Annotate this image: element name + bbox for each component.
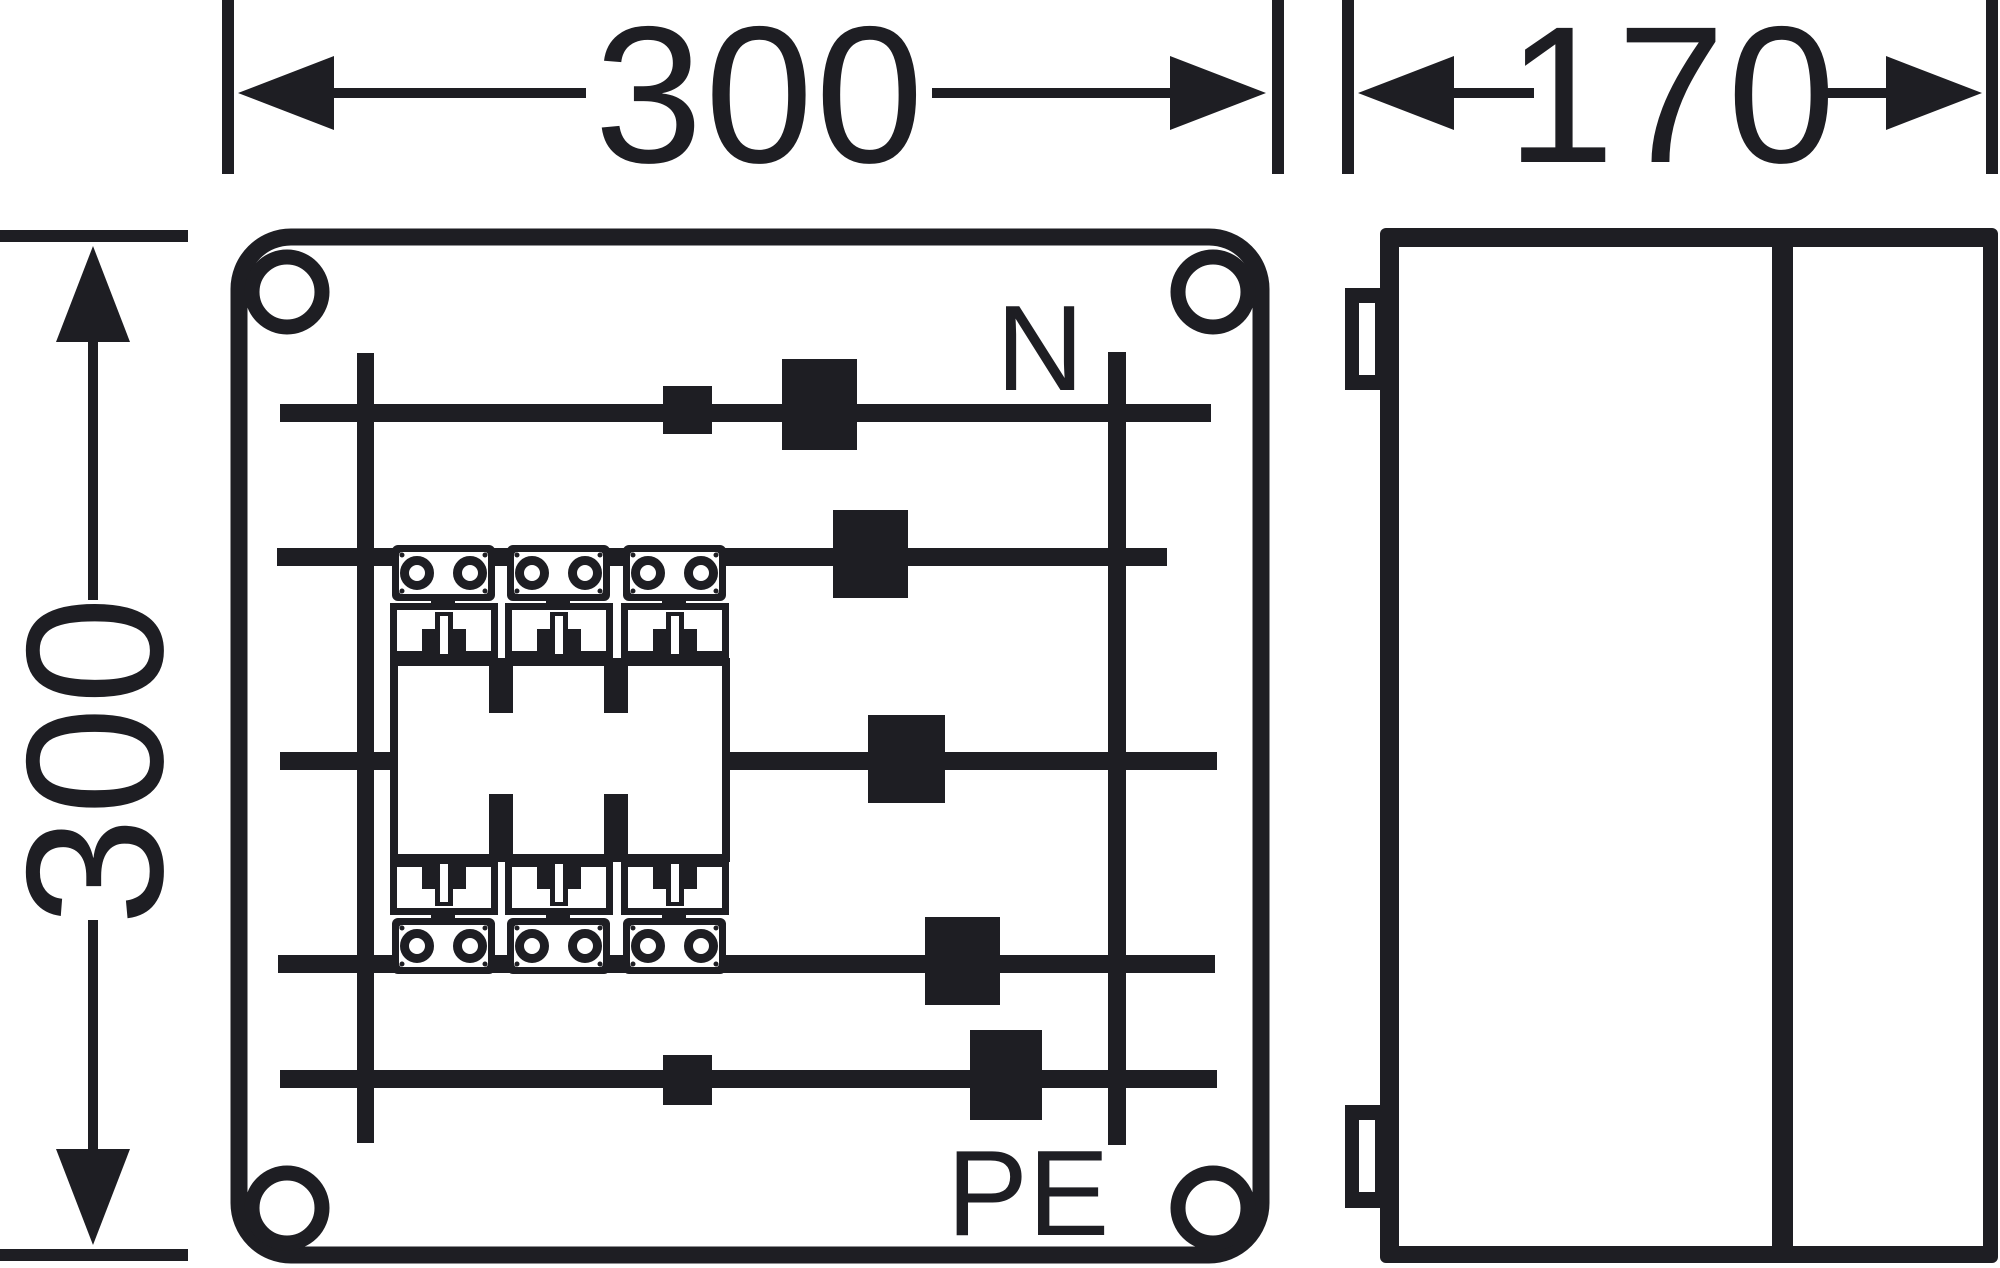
corner-screw	[1178, 257, 1248, 327]
connector-block-large	[782, 359, 857, 450]
corner-screw	[252, 1173, 322, 1243]
terminal-block-assembly	[390, 545, 729, 974]
depth-dimension-label: 170	[1506, 0, 1837, 204]
dimension-line	[932, 88, 1184, 98]
connector-block-large	[833, 510, 908, 598]
front-view: N PE	[239, 237, 1261, 1261]
terminal-plate-bottom	[392, 918, 495, 974]
terminal-plate-top	[392, 545, 495, 601]
arrow-left-icon	[1358, 56, 1454, 130]
wire-clamp-top	[621, 603, 729, 658]
dimension-width: 300	[222, 0, 1284, 204]
extension-line	[1986, 0, 1998, 174]
connector-block-small	[663, 1055, 712, 1105]
arrow-up-icon	[56, 246, 130, 342]
enclosure-drawing: 300 170 300	[0, 0, 2000, 1268]
dimension-line	[88, 332, 98, 600]
extension-line	[0, 1249, 188, 1261]
terminal-plate-top	[507, 545, 610, 601]
module-divider	[604, 794, 628, 862]
busbar-phase-2-left	[280, 752, 392, 770]
busbar-earth	[280, 1070, 1217, 1088]
arrow-down-icon	[56, 1149, 130, 1245]
connector-block-large	[868, 715, 945, 803]
side-panel-cover	[1793, 247, 1983, 1246]
dimension-depth: 170	[1342, 0, 1998, 204]
dimension-line	[320, 88, 586, 98]
height-dimension-label: 300	[0, 594, 204, 925]
technical-drawing-canvas: 300 170 300	[0, 0, 2000, 1268]
terminal-plate-bottom	[623, 918, 726, 974]
riser-bar-right	[1108, 352, 1126, 1145]
neutral-busbar-label: N	[996, 280, 1084, 416]
connector-block-large	[970, 1030, 1042, 1120]
extension-line	[0, 230, 188, 242]
side-panel-body	[1399, 247, 1772, 1246]
terminal-plate-top	[623, 545, 726, 601]
hinge-slot	[1359, 1120, 1375, 1192]
busbar-phase-2-right	[726, 752, 1217, 770]
terminal-body	[394, 662, 726, 858]
extension-line	[222, 0, 234, 174]
arrow-left-icon	[238, 56, 334, 130]
wire-clamp-top	[505, 603, 613, 658]
module-divider	[489, 794, 513, 862]
earth-busbar-label: PE	[947, 1125, 1110, 1261]
wire-clamp-top	[390, 603, 498, 658]
terminal-plate-bottom	[507, 918, 610, 974]
arrow-right-icon	[1886, 56, 1982, 130]
connector-block-large	[925, 917, 1000, 1005]
wire-clamp-bottom	[621, 860, 729, 915]
riser-bar-left	[357, 353, 374, 1143]
hinge-slot	[1359, 303, 1375, 375]
side-view	[1345, 228, 1998, 1263]
dimension-line	[88, 920, 98, 1155]
corner-screw	[1178, 1173, 1248, 1243]
extension-line	[1272, 0, 1284, 174]
module-divider	[489, 658, 513, 713]
connector-block-small	[663, 386, 712, 434]
extension-line	[1342, 0, 1354, 174]
wire-clamp-bottom	[390, 860, 498, 915]
width-dimension-label: 300	[594, 0, 925, 204]
module-divider	[604, 658, 628, 713]
wire-clamp-bottom	[505, 860, 613, 915]
arrow-right-icon	[1170, 56, 1266, 130]
dimension-height: 300	[0, 230, 204, 1261]
corner-screw	[252, 257, 322, 327]
